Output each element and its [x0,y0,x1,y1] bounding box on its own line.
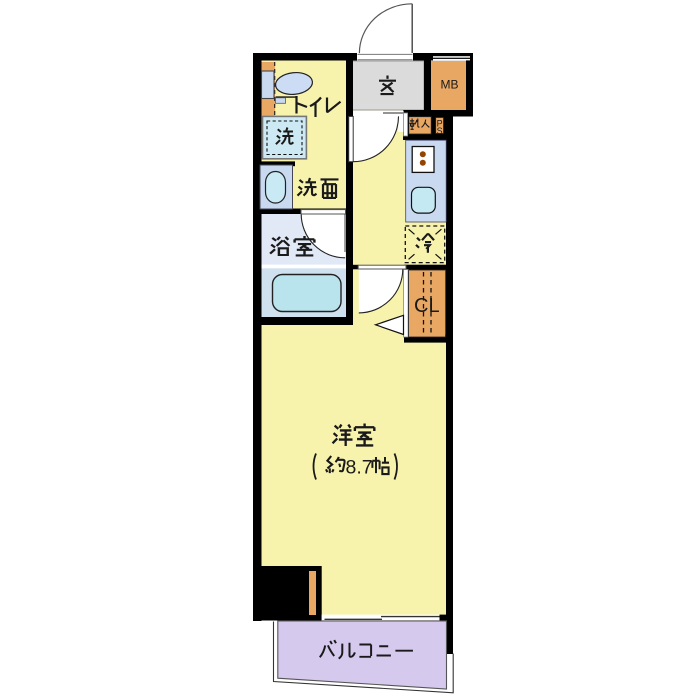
svg-text:CL: CL [414,295,440,317]
svg-text:MB: MB [441,78,459,92]
svg-text:S: S [437,126,443,136]
svg-text:8.7: 8.7 [346,457,373,479]
